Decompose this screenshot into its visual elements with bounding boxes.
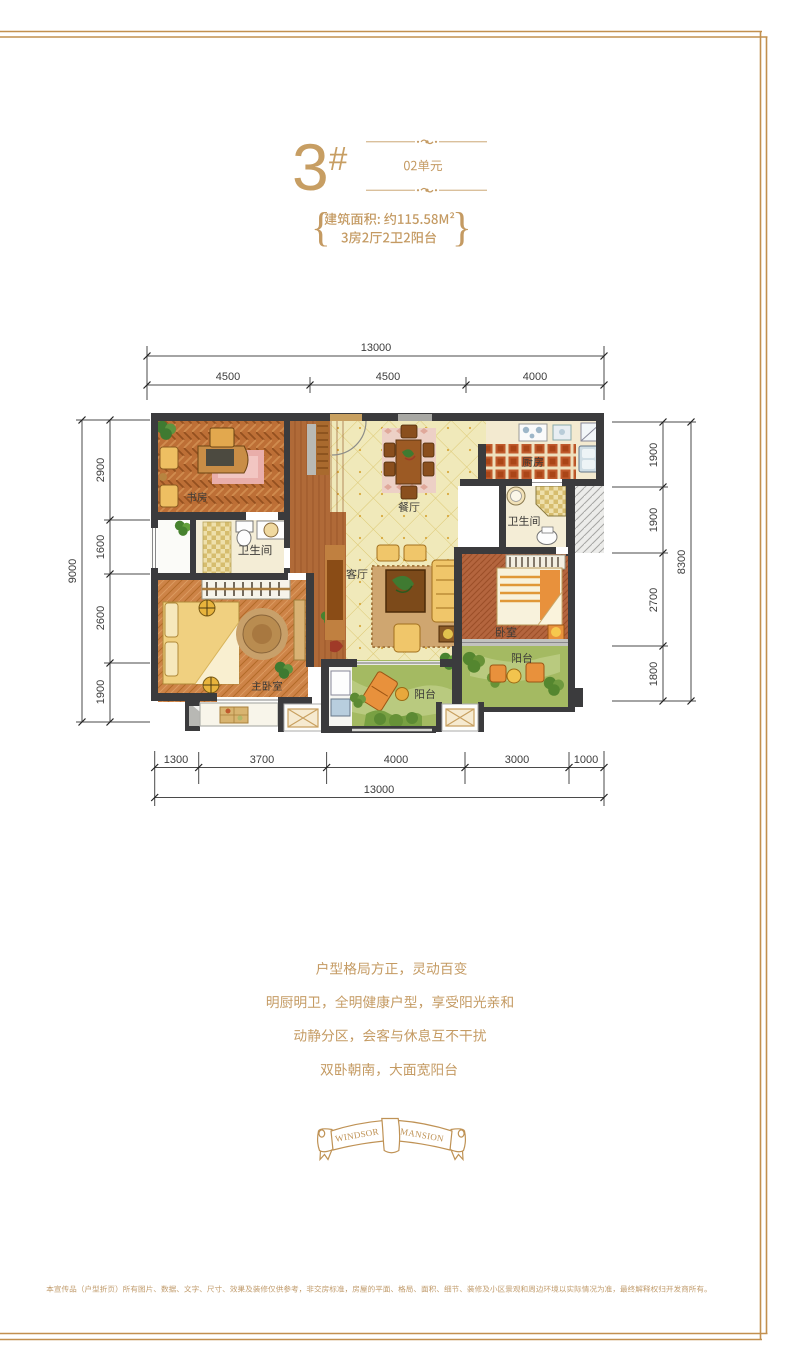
svg-text:1900: 1900 xyxy=(95,680,107,704)
svg-text:2700: 2700 xyxy=(648,588,660,612)
svg-text:1300: 1300 xyxy=(164,754,188,766)
svg-text:2600: 2600 xyxy=(95,606,107,630)
svg-text:#: # xyxy=(329,140,348,177)
svg-text:1900: 1900 xyxy=(648,508,660,532)
svg-text:3: 3 xyxy=(292,130,329,204)
svg-text:9000: 9000 xyxy=(67,559,79,583)
svg-text:1600: 1600 xyxy=(95,535,107,559)
svg-text:{: { xyxy=(311,204,331,250)
svg-text:}: } xyxy=(452,204,472,250)
svg-text:13000: 13000 xyxy=(364,784,395,796)
svg-text:4500: 4500 xyxy=(216,371,240,383)
svg-text:2900: 2900 xyxy=(95,458,107,482)
svg-text:4500: 4500 xyxy=(376,371,400,383)
svg-text:3700: 3700 xyxy=(250,754,274,766)
svg-text:1800: 1800 xyxy=(648,662,660,686)
svg-text:13000: 13000 xyxy=(361,342,392,354)
svg-text:1000: 1000 xyxy=(574,754,598,766)
svg-text:1900: 1900 xyxy=(648,443,660,467)
svg-text:4000: 4000 xyxy=(523,371,547,383)
svg-text:4000: 4000 xyxy=(384,754,408,766)
svg-text:8300: 8300 xyxy=(676,550,688,574)
svg-text:3000: 3000 xyxy=(505,754,529,766)
